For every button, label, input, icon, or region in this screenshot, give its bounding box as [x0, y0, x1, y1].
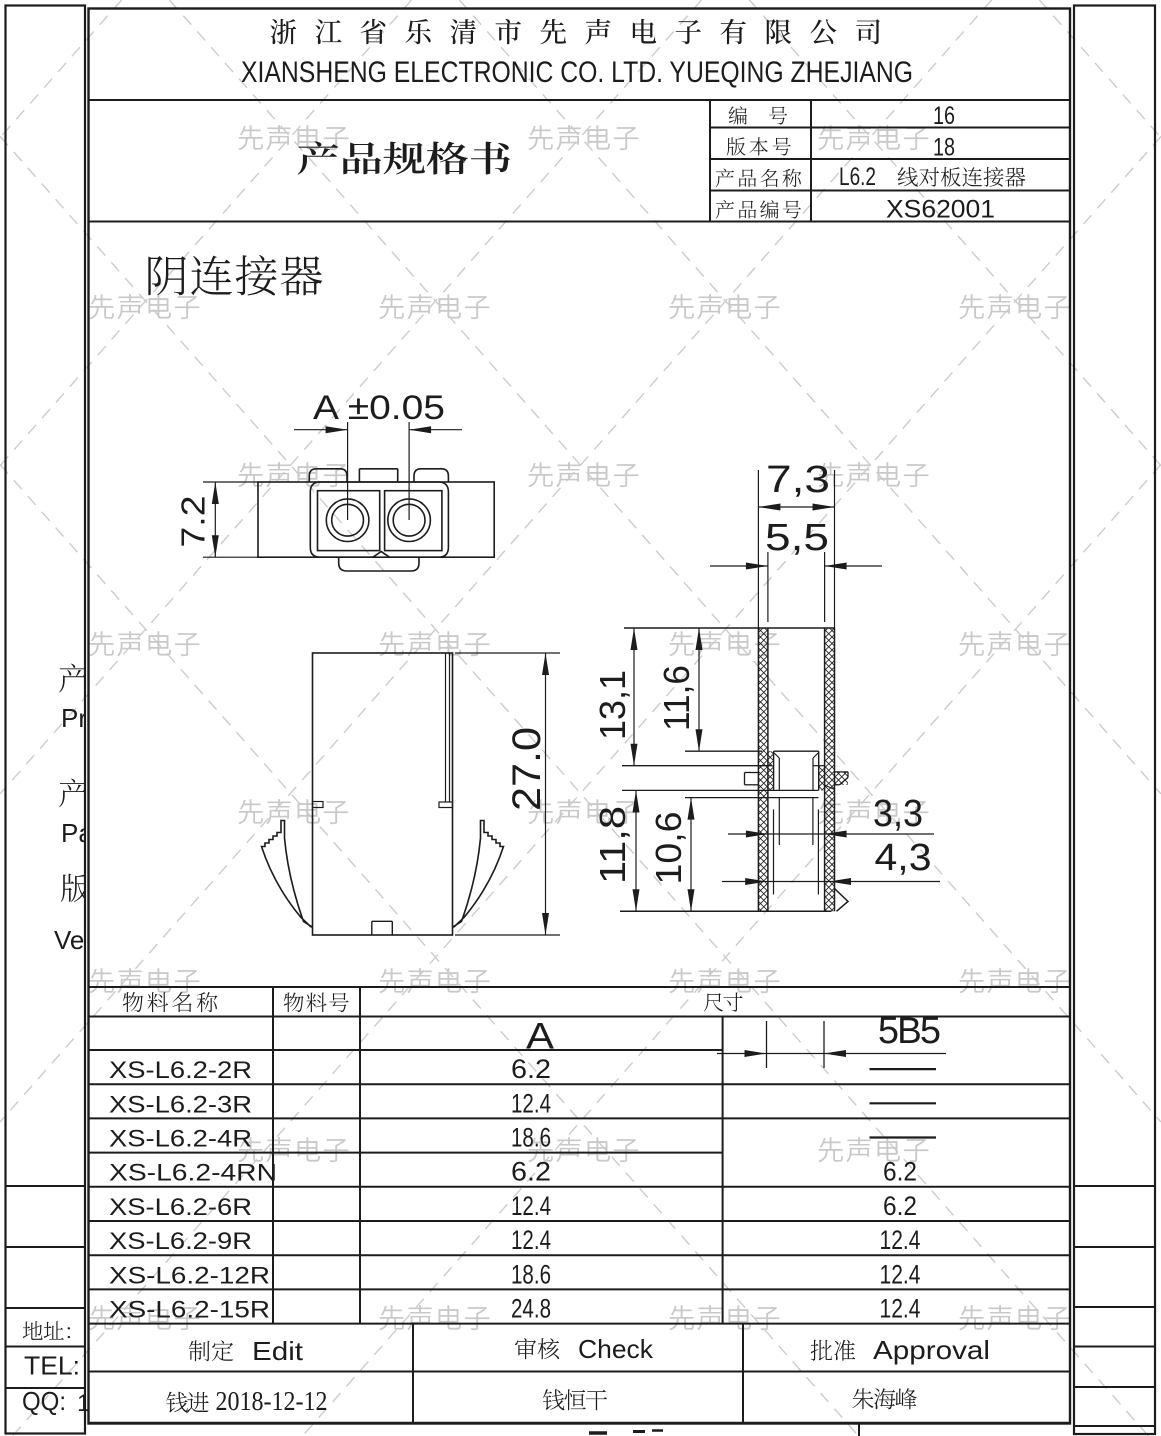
svg-text:XS62001: XS62001: [886, 196, 995, 224]
svg-text:Edit: Edit: [252, 1336, 304, 1366]
svg-text:6.2: 6.2: [511, 1157, 551, 1187]
svg-text:11,8: 11,8: [592, 806, 633, 884]
svg-text:Version: Version: [54, 925, 141, 955]
svg-text:Product: Product: [61, 703, 151, 733]
svg-text:XS-L6.2-9R: XS-L6.2-9R: [109, 1228, 252, 1255]
svg-text:27.0: 27.0: [505, 727, 549, 811]
svg-text:XIANSHENG ELECTRONIC CO. LTD.: XIANSHENG ELECTRONIC CO. LTD. YUEQING ZH…: [241, 56, 913, 89]
svg-text:12.4: 12.4: [880, 1259, 921, 1289]
svg-text:6.2: 6.2: [883, 1191, 917, 1221]
svg-text:A ±0.05: A ±0.05: [313, 389, 445, 427]
svg-text:5: 5: [920, 1010, 941, 1052]
svg-text:24.8: 24.8: [511, 1294, 551, 1324]
svg-text:2018-12-12: 2018-12-12: [216, 1386, 328, 1416]
svg-text:18: 18: [933, 134, 955, 162]
svg-text:XS-L6.2-6R: XS-L6.2-6R: [109, 1194, 252, 1221]
svg-text:6.2: 6.2: [511, 1054, 551, 1084]
svg-text:18.6: 18.6: [511, 1259, 551, 1289]
svg-text:7,3: 7,3: [766, 459, 830, 501]
svg-text:5: 5: [878, 1010, 899, 1052]
svg-text:12.4: 12.4: [511, 1225, 551, 1255]
svg-text:Approval: Approval: [873, 1335, 990, 1365]
svg-text:18.6: 18.6: [511, 1123, 551, 1153]
svg-text:6.2: 6.2: [883, 1157, 917, 1187]
svg-text:Check: Check: [578, 1334, 654, 1364]
svg-text:XS-L6.2-4R: XS-L6.2-4R: [109, 1126, 252, 1153]
svg-text:11,6: 11,6: [656, 665, 697, 731]
svg-text:13,1: 13,1: [592, 670, 633, 740]
svg-text:12.4: 12.4: [511, 1088, 551, 1118]
svg-text:10,6: 10,6: [648, 812, 689, 885]
svg-text:4,3: 4,3: [875, 837, 932, 879]
svg-text:QQ:: QQ:: [22, 1386, 66, 1416]
svg-text:5,5: 5,5: [765, 517, 829, 559]
svg-text:B: B: [897, 1010, 922, 1051]
svg-text:3,3: 3,3: [873, 793, 923, 835]
svg-text:A: A: [526, 1016, 554, 1057]
svg-text:Part: Part: [61, 818, 109, 848]
svg-text:TEL:: TEL:: [24, 1351, 80, 1381]
svg-text:16: 16: [933, 102, 955, 130]
svg-text:XS-L6.2-4RN: XS-L6.2-4RN: [109, 1160, 277, 1187]
svg-text:XS-L6.2-12R: XS-L6.2-12R: [109, 1262, 270, 1289]
svg-text:12.4: 12.4: [511, 1191, 551, 1221]
svg-text:7.2: 7.2: [175, 496, 212, 548]
svg-text:12.4: 12.4: [880, 1225, 921, 1255]
svg-text:XS-L6.2-3R: XS-L6.2-3R: [109, 1091, 252, 1118]
svg-text:L6.2: L6.2: [839, 163, 876, 191]
svg-text:12.4: 12.4: [880, 1294, 921, 1324]
svg-text:XS-L6.2-2R: XS-L6.2-2R: [109, 1057, 252, 1084]
svg-text:XS-L6.2-15R: XS-L6.2-15R: [109, 1297, 270, 1324]
